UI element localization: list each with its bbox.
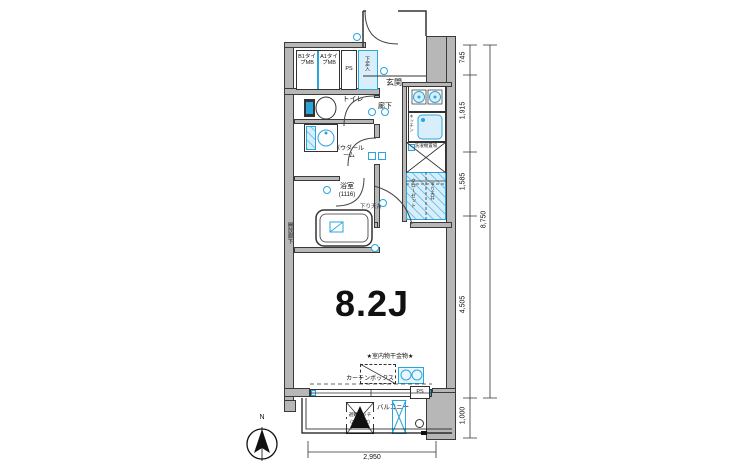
faucet-symbol	[408, 144, 415, 151]
wall-top-alcove	[284, 42, 366, 48]
kitchen-label: キッチン	[409, 114, 414, 132]
lowered-ceiling-closet-label: 下り天井	[430, 182, 435, 200]
switch-symbol	[368, 152, 376, 160]
escape-hatch	[346, 402, 374, 434]
open-corridor-label: 開放廊下	[286, 222, 292, 244]
wall-hall-room-b	[410, 222, 452, 228]
meter-box-b1-label: B1タイプMB	[297, 54, 317, 66]
outlet-symbol	[379, 199, 387, 207]
indoor-drying-label: ★室内物干金物★	[348, 354, 432, 361]
pipe-space-top-label: PS	[341, 66, 357, 72]
dim-right-total: 8,750	[481, 198, 488, 242]
dim-right-4505: 4,505	[460, 283, 467, 327]
outlet-symbol	[353, 33, 361, 41]
outlet-symbol	[371, 244, 379, 252]
wall-powder-bath	[294, 176, 340, 181]
wall-bath-room	[294, 247, 380, 253]
balcony-drain	[415, 419, 424, 428]
switch-symbol	[378, 152, 386, 160]
pipe-space-bottom-label: PS	[410, 389, 430, 395]
bathroom-label: 浴室	[330, 183, 364, 191]
compass-north-label: N	[256, 414, 268, 422]
outlet-symbol	[323, 186, 331, 194]
air-conditioner	[398, 367, 424, 384]
powder-room-label: パウダールーム	[334, 146, 364, 159]
wall-hall-left-c	[374, 164, 380, 228]
window-lock-left	[311, 390, 316, 396]
toilet-label: トイレ	[338, 96, 368, 104]
wall-balcony-right-block	[426, 392, 456, 440]
outlet-symbol	[368, 108, 376, 116]
wall-window-left	[284, 388, 310, 397]
escape-hatch-label: 避難ハッチ	[344, 412, 376, 417]
outlet-symbol	[360, 238, 368, 246]
dim-right-1585: 1,585	[460, 160, 467, 204]
dim-right-745: 745	[460, 36, 467, 80]
drying-unit	[360, 364, 396, 384]
closet-label: クローゼット	[410, 178, 415, 208]
wall-right	[446, 36, 456, 402]
outlet-symbol	[381, 108, 389, 116]
shoe-cabinet-label: 下足入	[364, 56, 369, 71]
stove	[408, 86, 446, 112]
bathroom-size-label: (1116)	[330, 192, 364, 199]
vanity-cabinet	[306, 126, 316, 150]
main-room-size: 8.2J	[322, 284, 422, 324]
wall-hall-left-a	[374, 95, 380, 98]
wall-hall-left-b	[374, 124, 380, 138]
balcony-duct	[392, 400, 406, 434]
dim-right-1000: 1,000	[460, 394, 467, 438]
wall-balcony-left-stub	[284, 400, 296, 412]
balcony-mark	[421, 431, 427, 435]
meter-box-a1-label: A1タイプMB	[319, 54, 339, 66]
outlet-symbol	[380, 67, 388, 75]
dim-right-1915: 1,915	[460, 89, 467, 133]
dim-bottom-width: 2,950	[344, 454, 400, 462]
floor-plan: B1タイプMB A1タイプMB PS 下足入 玄関 トイレ 廊下 パウダールーム…	[0, 0, 730, 470]
escape-hatch-floors-label: (3.4.5.6F)	[346, 419, 374, 424]
wall-hall-room-a	[374, 222, 378, 228]
